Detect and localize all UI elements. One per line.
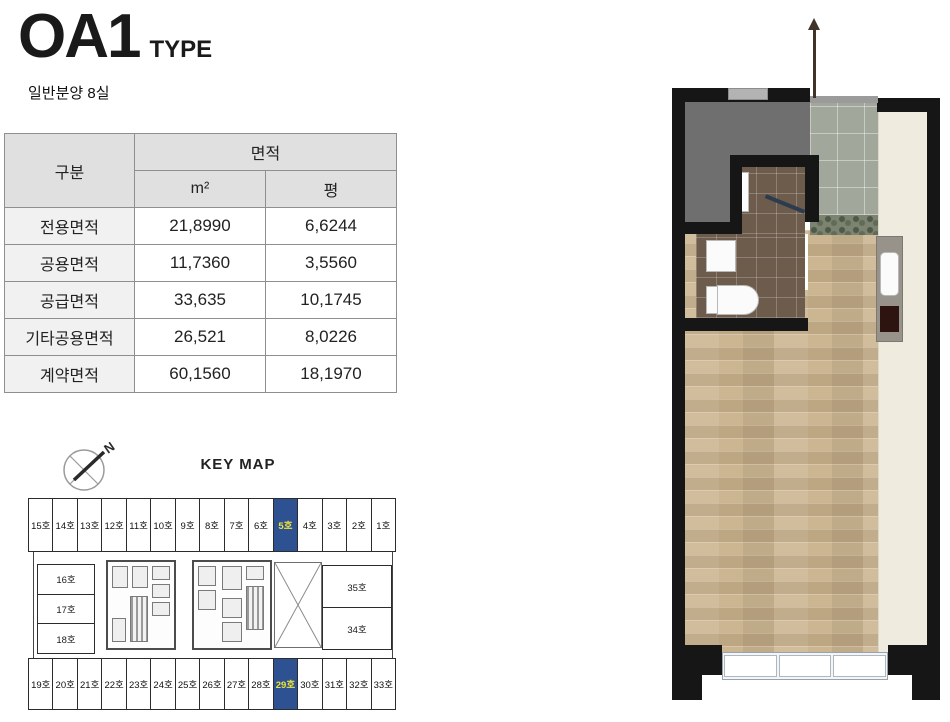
unit-cell: 22호: [102, 658, 126, 710]
wall-bathroom-right: [805, 155, 819, 222]
entry-door-threshold: [810, 96, 878, 103]
entry-hall-tile: [810, 100, 878, 215]
header: OA1TYPE 일반분양 8실: [18, 6, 212, 103]
toilet-bowl: [717, 285, 759, 315]
key-map-bottom-row: 19호 20호 21호 22호 23호 24호 25호 26호 27호 28호 …: [28, 658, 396, 710]
window-pane: [833, 655, 886, 677]
floor-plan-sheet: OA1TYPE 일반분양 8실 구분 면적 m² 평 전용면적 21,8990 …: [0, 0, 950, 722]
unit-cell-highlighted: 29호: [274, 658, 298, 710]
key-map-top-row: 15호 14호 13호 12호 11호 10호 9호 8호 7호 6호 5호 4…: [28, 498, 396, 552]
unit-cell: 25호: [176, 658, 200, 710]
key-map-left-units: 16호 17호 18호: [37, 564, 95, 654]
unit-cell: 4호: [298, 498, 322, 552]
key-map-title: KEY MAP: [178, 456, 298, 473]
unit-cell: 24호: [151, 658, 175, 710]
corridor-line-right: [392, 552, 393, 660]
bathroom-door: [805, 234, 808, 290]
unit-cell-highlighted: 5호: [274, 498, 298, 552]
col-header-area: 면적: [135, 134, 397, 171]
value-m2: 33,635: [135, 282, 266, 319]
entry-arrow-line: [813, 30, 816, 98]
void-area: [274, 562, 322, 648]
unit-cell: 35호: [322, 565, 392, 608]
window-top: [728, 88, 768, 100]
unit-cell: 14호: [53, 498, 77, 552]
unit-cell: 19호: [28, 658, 53, 710]
building-core-east: [192, 560, 272, 650]
row-label: 기타공용면적: [5, 319, 135, 356]
unit-cell: 21호: [78, 658, 102, 710]
key-map-core-band: 16호 17호 18호: [28, 558, 396, 654]
wall-bottom-left-stub: [672, 645, 702, 700]
unit-cell: 9호: [176, 498, 200, 552]
utility-room-arm: [685, 160, 730, 224]
area-table: 구분 면적 m² 평 전용면적 21,8990 6,6244 공용면적 11,7…: [4, 133, 397, 393]
wall-utility-bottom: [685, 222, 742, 234]
unit-cell: 23호: [127, 658, 151, 710]
unit-cell: 11호: [127, 498, 151, 552]
col-header-category: 구분: [5, 134, 135, 208]
wall-bathroom-bottom: [685, 318, 808, 331]
unit-cell: 1호: [372, 498, 396, 552]
value-m2: 21,8990: [135, 208, 266, 245]
utility-room: [685, 100, 810, 162]
table-row: 계약면적 60,1560 18,1970: [5, 356, 397, 393]
row-label: 공용면적: [5, 245, 135, 282]
value-pyeong: 8,0226: [266, 319, 397, 356]
corridor-line-left: [33, 552, 34, 660]
unit-cell: 12호: [102, 498, 126, 552]
wall-right: [927, 98, 940, 690]
unit-cell: 13호: [78, 498, 102, 552]
value-m2: 26,521: [135, 319, 266, 356]
value-m2: 11,7360: [135, 245, 266, 282]
bathroom-sink: [706, 240, 736, 272]
table-row: 공용면적 11,7360 3,5560: [5, 245, 397, 282]
unit-cell: 10호: [151, 498, 175, 552]
compass-icon: N: [60, 442, 126, 497]
wall-left: [672, 88, 685, 700]
closet-strip: [878, 112, 927, 652]
window-pane: [779, 655, 832, 677]
unit-cell: 28호: [249, 658, 273, 710]
col-header-m2: m²: [135, 171, 266, 208]
unit-floor-plan: [672, 0, 942, 722]
unit-cell: 30호: [298, 658, 322, 710]
key-map-right-units: 35호 34호: [322, 565, 392, 650]
unit-cell: 7호: [225, 498, 249, 552]
unit-cell: 16호: [37, 564, 95, 595]
unit-cell: 20호: [53, 658, 77, 710]
unit-cell: 32호: [347, 658, 371, 710]
key-map: N KEY MAP 15호 14호 13호 12호 11호 10호 9호 8호 …: [28, 440, 396, 718]
value-pyeong: 10,1745: [266, 282, 397, 319]
row-label: 전용면적: [5, 208, 135, 245]
unit-cell: 31호: [323, 658, 347, 710]
row-label: 계약면적: [5, 356, 135, 393]
pebble-strip: [810, 215, 878, 235]
value-pyeong: 18,1970: [266, 356, 397, 393]
kitchen-sink: [880, 252, 899, 296]
window-pane: [724, 655, 777, 677]
table-row: 전용면적 21,8990 6,6244: [5, 208, 397, 245]
table-row: 공급면적 33,635 10,1745: [5, 282, 397, 319]
page-title-suffix: TYPE: [149, 36, 212, 63]
unit-cell: 33호: [372, 658, 396, 710]
value-pyeong: 3,5560: [266, 245, 397, 282]
unit-cell: 2호: [347, 498, 371, 552]
building-core-west: [106, 560, 176, 650]
table-row: 기타공용면적 26,521 8,0226: [5, 319, 397, 356]
page-title: OA1: [18, 2, 139, 71]
wall-bottom-right-stub: [912, 645, 940, 700]
value-m2: 60,1560: [135, 356, 266, 393]
entry-arrow-icon: [808, 18, 820, 30]
unit-cell: 3호: [323, 498, 347, 552]
window-bottom: [722, 652, 888, 680]
row-label: 공급면적: [5, 282, 135, 319]
unit-cell: 26호: [200, 658, 224, 710]
page-subtitle: 일반분양 8실: [28, 82, 212, 103]
unit-cell: 27호: [225, 658, 249, 710]
unit-cell: 15호: [28, 498, 53, 552]
value-pyeong: 6,6244: [266, 208, 397, 245]
cooktop: [880, 306, 899, 332]
col-header-pyeong: 평: [266, 171, 397, 208]
unit-cell: 8호: [200, 498, 224, 552]
unit-cell: 34호: [322, 607, 392, 650]
unit-cell: 6호: [249, 498, 273, 552]
unit-cell: 17호: [37, 594, 95, 625]
unit-cell: 18호: [37, 623, 95, 654]
